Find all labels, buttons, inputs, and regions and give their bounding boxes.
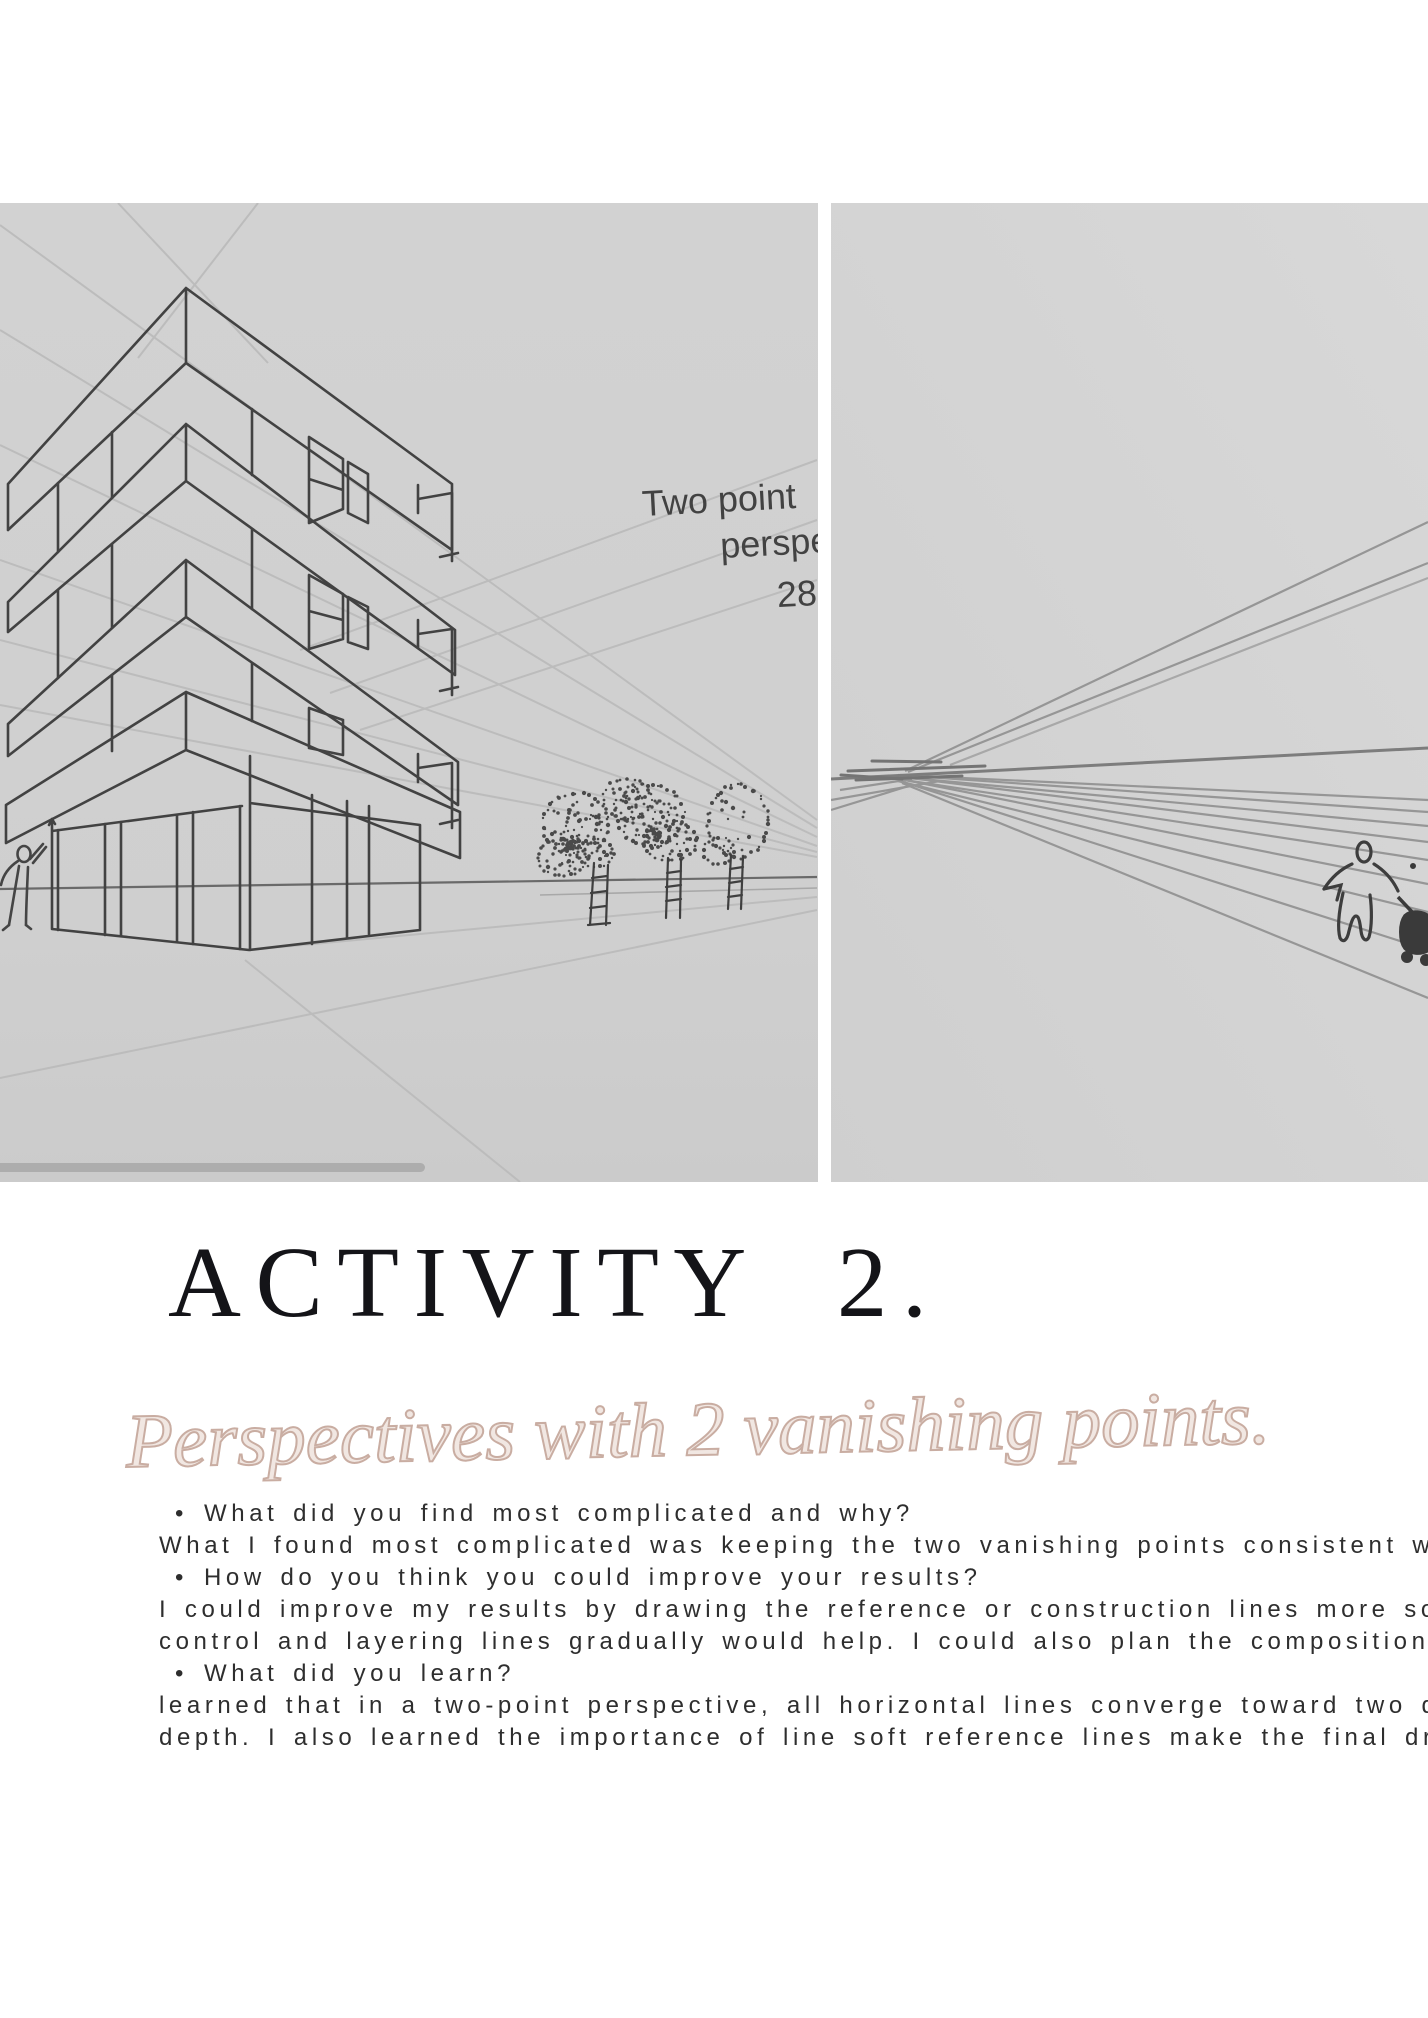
svg-text:Two point: Two point (641, 475, 797, 524)
svg-text:perspec: perspec (719, 518, 818, 566)
svg-text:28-: 28- (776, 571, 818, 615)
